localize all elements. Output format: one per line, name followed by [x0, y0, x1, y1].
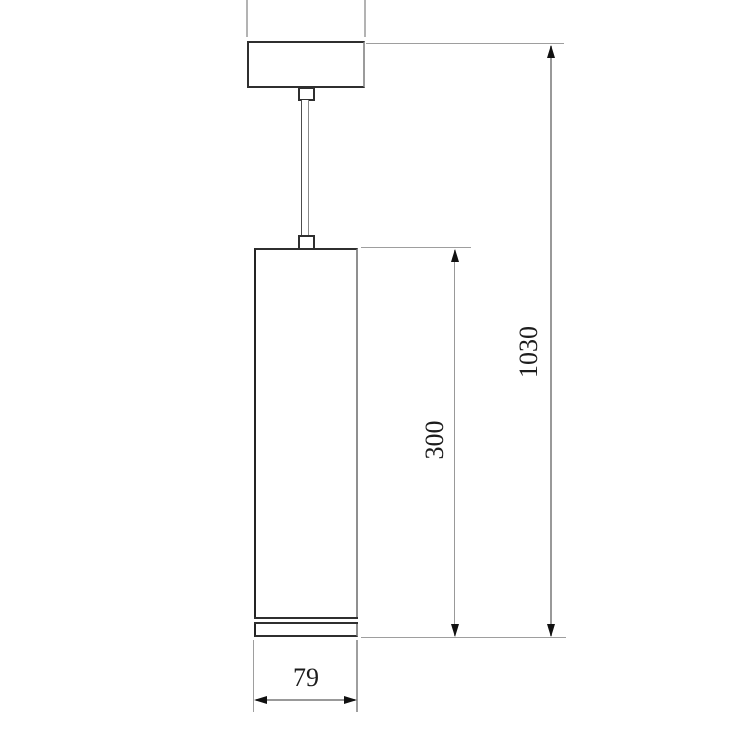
arrow-up-icon: [451, 249, 459, 262]
lamp-body-rect: [254, 248, 358, 637]
arrow-right-icon: [344, 696, 357, 704]
ceiling-crop-line-left: [246, 0, 248, 37]
cord-connector-bottom: [298, 235, 315, 248]
dimension-line-body-height: [454, 250, 456, 636]
body-height-label: 300: [422, 421, 448, 460]
arrow-down-icon: [547, 624, 555, 637]
arrow-up-icon: [547, 45, 555, 58]
extension-line-canopy-top: [366, 43, 564, 45]
body-width-label: 79: [293, 665, 319, 691]
ceiling-crop-line-right: [364, 0, 366, 37]
technical-drawing-canvas: 1030 300 79: [0, 0, 744, 744]
canopy-rect: [247, 41, 365, 88]
lamp-bottom-trim-ring: [254, 617, 358, 625]
arrow-down-icon: [451, 624, 459, 637]
arrow-left-icon: [254, 696, 267, 704]
overall-height-label: 1030: [516, 326, 542, 378]
dimension-line-body-width: [256, 699, 355, 701]
extension-line-body-bottom: [361, 637, 566, 639]
dimension-line-overall-height: [550, 46, 552, 636]
cord-connector-top: [298, 87, 315, 101]
suspension-cord: [301, 100, 309, 236]
